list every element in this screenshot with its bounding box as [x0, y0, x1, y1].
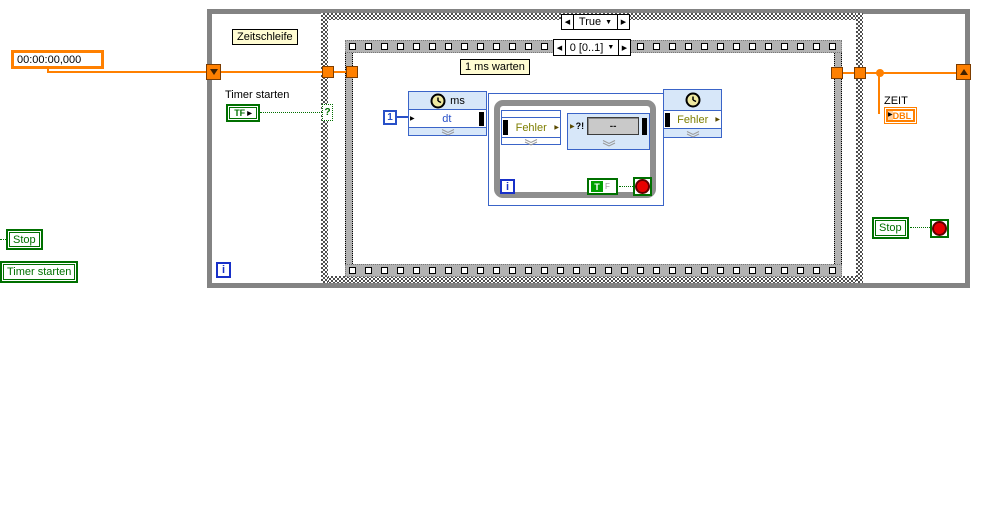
sequence-border-left [345, 53, 353, 264]
display-value-box[interactable]: -- [587, 117, 639, 135]
expand-chevron-icon[interactable] [602, 140, 616, 147]
shift-register-up-icon [960, 69, 968, 75]
question-mark-icon: ? [324, 107, 330, 118]
zeitschleife-label: Zeitschleife [232, 29, 298, 45]
case-border-right [856, 13, 863, 283]
expand-chevron-icon[interactable] [524, 139, 538, 146]
display-node[interactable]: ▶ ?! -- [567, 113, 650, 150]
wire-case-to-seq [333, 71, 347, 73]
wire-true-to-stop [619, 186, 633, 187]
case-border-left [321, 13, 328, 283]
constant-one-value: 1 [387, 112, 393, 123]
true-f: F [605, 182, 610, 191]
zeit-type: DBL [893, 111, 912, 121]
iteration-terminal-outer[interactable]: i [216, 262, 231, 278]
shift-register-left[interactable] [206, 64, 221, 80]
sequence-selector-value: 0 [0..1] [570, 42, 604, 54]
wire-stop-to-condition [910, 227, 930, 228]
loop-condition-terminal-inner[interactable] [633, 177, 652, 196]
case-selector[interactable]: ◀ True▼ ▶ [561, 14, 630, 30]
shift-register-right[interactable] [956, 64, 971, 80]
stop-left-label: Stop [9, 232, 40, 247]
tf-label: TF [234, 108, 245, 118]
case-next-icon[interactable]: ▶ [618, 15, 629, 29]
tunnel-sequence-right[interactable] [831, 67, 843, 79]
iteration-i: i [222, 264, 225, 276]
error-out-arrow-icon: ▶ [554, 124, 559, 131]
loop-condition-terminal-outer[interactable] [930, 219, 949, 238]
expand-chevron-icon[interactable] [441, 129, 455, 136]
error-node-label: Fehler [508, 122, 554, 134]
wait-ms-unit: ms [450, 95, 465, 107]
error-node-label: Fehler [670, 114, 715, 126]
stop-control-right[interactable]: Stop [872, 217, 909, 239]
sequence-dropdown-icon[interactable]: ▼ [607, 44, 614, 51]
elapsed-time-node[interactable]: Fehler ▶ [663, 89, 722, 138]
wait-ms-node[interactable]: ms ▶ dt [408, 91, 487, 136]
tunnel-case-right[interactable] [854, 67, 866, 79]
ms-warten-label: 1 ms warten [460, 59, 530, 75]
error-node-inner[interactable]: Fehler ▶ [501, 110, 561, 145]
timer-starten-control-left[interactable]: Timer starten [0, 261, 78, 283]
tf-out-arrow-icon: ▶ [247, 110, 252, 117]
zeit-caption: ZEIT [884, 95, 908, 107]
stop-right-label: Stop [875, 220, 906, 236]
error-out-bar[interactable] [642, 118, 647, 135]
wire-one-to-dt [397, 116, 408, 118]
stop-control-left[interactable]: Stop [6, 229, 43, 250]
case-selector-terminal[interactable]: ? [322, 104, 333, 121]
case-border-bottom [321, 276, 863, 283]
wire-time-to-loop [47, 71, 207, 73]
wait-ms-dt: dt [415, 113, 479, 125]
wire-junction-dot [876, 69, 884, 77]
display-value: -- [610, 121, 617, 132]
time-display-control[interactable]: 00:00:00,000 [11, 50, 104, 69]
timer-starten-caption: Timer starten [225, 89, 289, 101]
display-in-arrow-icon: ▶ [570, 123, 575, 130]
clock-icon [430, 93, 446, 109]
stop-sign-icon [635, 179, 650, 194]
zeit-indicator[interactable]: ▶ DBL [884, 107, 917, 124]
sequence-border-bottom [345, 264, 842, 277]
expand-chevron-icon[interactable] [686, 131, 700, 138]
iteration-i: i [506, 181, 509, 193]
iteration-terminal-inner[interactable]: i [500, 179, 515, 194]
case-prev-icon[interactable]: ◀ [562, 15, 573, 29]
case-dropdown-icon[interactable]: ▼ [605, 19, 612, 26]
tunnel-case-left[interactable] [322, 66, 334, 78]
sequence-selector[interactable]: ◀ 0 [0..1]▼ ▶ [553, 39, 631, 56]
sequence-prev-icon[interactable]: ◀ [554, 40, 565, 55]
wire-loop-to-case [212, 71, 322, 73]
true-t: T [591, 181, 603, 192]
stop-sign-icon [932, 221, 947, 236]
time-display-value: 00:00:00,000 [17, 54, 81, 66]
shift-register-down-icon [210, 69, 218, 75]
tunnel-sequence-left[interactable] [346, 66, 358, 78]
display-prefix: ?! [576, 121, 585, 131]
sequence-next-icon[interactable]: ▶ [619, 40, 630, 55]
case-selector-value: True [579, 16, 601, 28]
sequence-border-right [834, 53, 842, 264]
labview-block-diagram: ◀ True▼ ▶ ◀ 0 [0..1]▼ ▶ Zeitschleife 1 m… [0, 0, 983, 525]
true-constant[interactable]: T F [587, 178, 618, 195]
numeric-constant-one[interactable]: 1 [383, 110, 397, 125]
wire-branch-to-zeit [878, 73, 880, 114]
tf-boolean-control[interactable]: TF▶ [226, 104, 260, 122]
timer-starten-left-label: Timer starten [3, 264, 75, 280]
wire-tf-to-case [260, 112, 322, 113]
clock-icon [685, 92, 701, 108]
error-out-bar[interactable] [479, 112, 484, 126]
error-out-arrow-icon: ▶ [715, 116, 720, 123]
